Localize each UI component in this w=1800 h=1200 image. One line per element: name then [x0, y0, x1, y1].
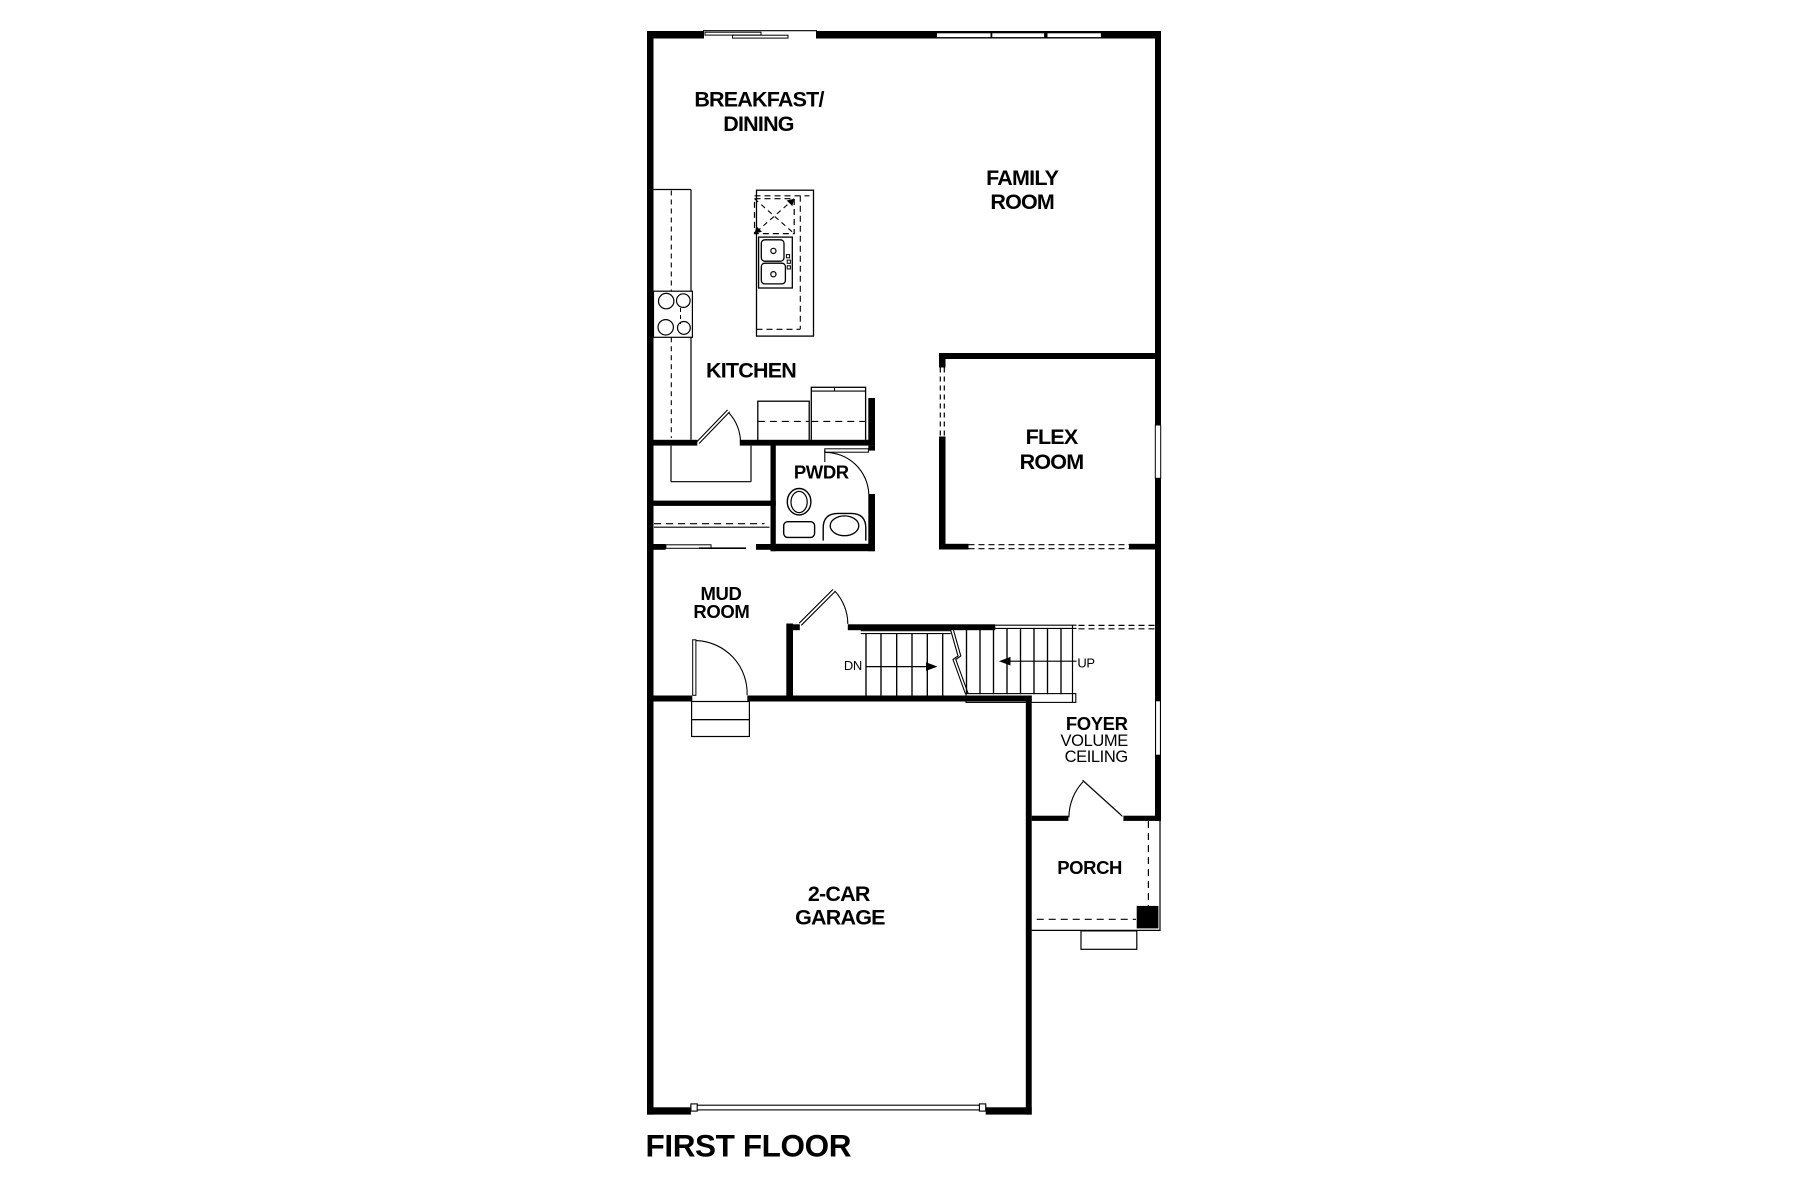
svg-text:UP: UP: [1077, 656, 1094, 671]
svg-text:2-CAR: 2-CAR: [808, 882, 871, 906]
svg-text:BREAKFAST/: BREAKFAST/: [694, 88, 824, 112]
svg-text:KITCHEN: KITCHEN: [706, 359, 796, 383]
svg-text:ROOM: ROOM: [1020, 450, 1084, 474]
svg-text:PORCH: PORCH: [1057, 857, 1122, 878]
svg-text:FAMILY: FAMILY: [986, 166, 1059, 190]
svg-text:ROOM: ROOM: [990, 190, 1054, 214]
svg-text:ROOM: ROOM: [693, 601, 749, 622]
svg-text:FIRST FLOOR: FIRST FLOOR: [646, 1127, 852, 1163]
svg-text:FOYER: FOYER: [1066, 713, 1128, 734]
svg-text:PWDR: PWDR: [794, 461, 849, 482]
svg-text:DINING: DINING: [723, 112, 794, 136]
svg-text:CEILING: CEILING: [1065, 748, 1128, 766]
svg-text:GARAGE: GARAGE: [795, 905, 885, 929]
svg-text:DN: DN: [844, 658, 862, 673]
svg-text:FLEX: FLEX: [1026, 425, 1079, 449]
